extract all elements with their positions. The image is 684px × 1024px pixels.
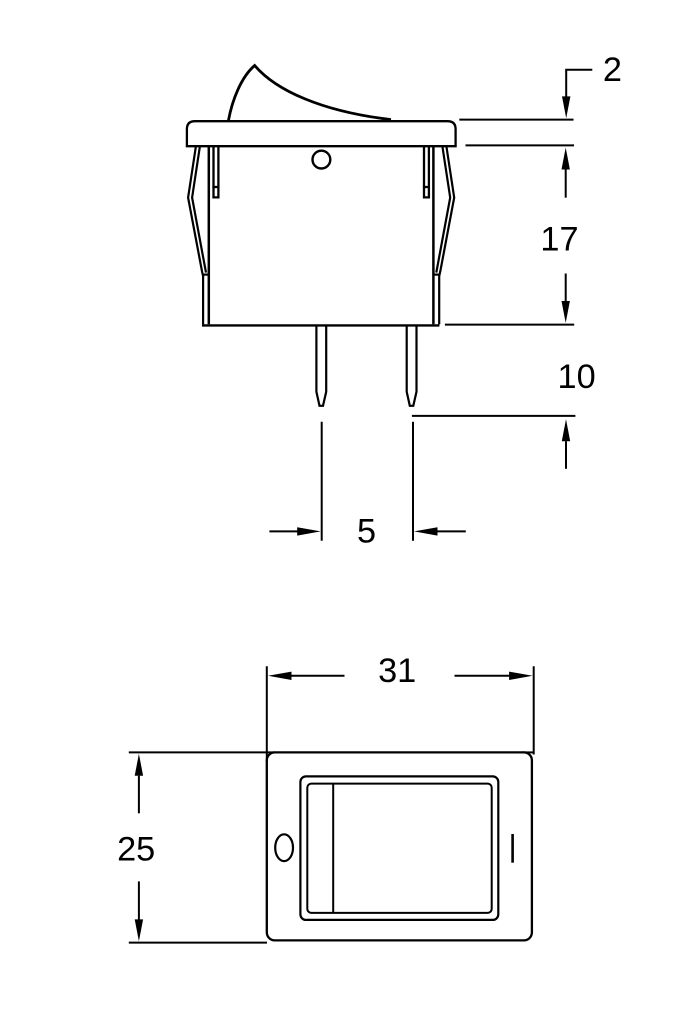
svg-text:31: 31 — [378, 652, 416, 690]
svg-text:17: 17 — [540, 221, 578, 259]
svg-text:2: 2 — [603, 51, 622, 89]
svg-text:10: 10 — [558, 358, 596, 396]
svg-text:25: 25 — [117, 831, 155, 869]
svg-text:5: 5 — [357, 513, 376, 551]
